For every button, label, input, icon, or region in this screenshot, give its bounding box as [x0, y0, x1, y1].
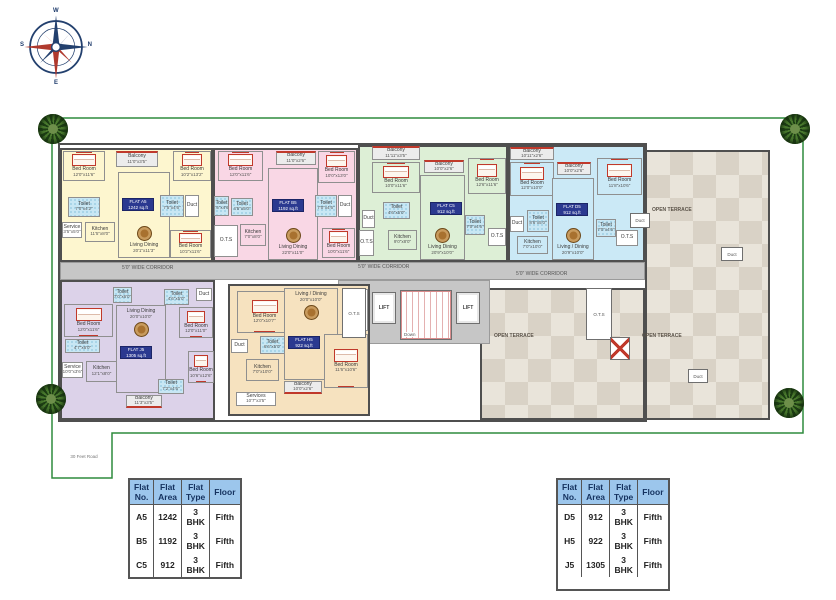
ots-shaft: O.T.S: [616, 230, 638, 246]
duct-label: Duct: [635, 218, 644, 223]
lift: LIFT: [456, 292, 480, 324]
room-dimensions: 3'5"x5'0": [63, 230, 80, 235]
room-dimensions: 4'5"x4'6": [214, 206, 229, 211]
kitchen: Kitchen7'0"x8'0": [240, 224, 266, 246]
bedroom: Bed Room11'6"x10'6": [324, 334, 368, 388]
toilet: Toilet7'2"x4'6": [158, 379, 184, 394]
room-dimensions: 10'0"x3'6": [63, 370, 83, 375]
lift-label: LIFT: [463, 305, 474, 311]
bedroom: Bed Room10'2"x11'6": [170, 230, 211, 258]
room-dimensions: 10'6"x12'6": [190, 374, 212, 379]
bed-icon: [334, 349, 358, 362]
flat-label-c5: FLAT C5912 sq.ft: [430, 202, 462, 215]
table-cell: Fifth: [638, 529, 669, 553]
room-dimensions: 10'7"x3'5": [246, 399, 266, 404]
table-spacer: [557, 577, 669, 590]
room-dimensions: 8'6"x5'0": [529, 221, 546, 226]
duct: Duct: [231, 339, 248, 353]
balcony: Balcony10'11"x2'6": [510, 147, 554, 160]
room-dimensions: 12'0"x10'7": [253, 319, 275, 324]
column-header: Flat No.: [129, 479, 154, 505]
living-dining: Living Dining20'9"x10'0": [420, 175, 465, 260]
ots-shaft: O.T.S: [586, 288, 612, 340]
bed-icon: [383, 166, 409, 178]
room-dimensions: 12'0"x11'6": [78, 328, 100, 333]
flat-info-table: Flat No.Flat AreaFlat TypeFloorD59123 BH…: [556, 478, 670, 591]
column-header: Flat Area: [154, 479, 182, 505]
dining-table-icon: [137, 226, 152, 241]
duct: Duct: [185, 195, 199, 217]
flat-area: 1305 sq.ft: [126, 353, 146, 358]
room-dimensions: 7'0"x8'0": [244, 235, 261, 240]
room-dimensions: 7'0"x4'2": [75, 207, 92, 212]
tree-icon: [38, 114, 68, 144]
ots-shaft-label: O.T.S: [593, 312, 604, 317]
room-dimensions: 20'9"x10'0": [562, 251, 584, 256]
ots-shaft-label: O.T.S: [348, 311, 359, 316]
staircase-label: Down: [403, 332, 417, 337]
table-cell: J5: [557, 553, 582, 577]
table-row: B511923 BHKFifth: [129, 529, 241, 553]
toilet: Toilet7'0"x4'6": [596, 219, 616, 237]
column-header: Flat Type: [182, 479, 210, 505]
bedroom: Bed Room12'6"x11'6": [468, 158, 506, 194]
window-mark-icon: [330, 151, 344, 153]
dining-table-icon: [134, 322, 149, 337]
bed-icon: [76, 308, 102, 321]
table-row: H59223 BHKFifth: [557, 529, 669, 553]
duct: Duct: [510, 216, 524, 232]
room-name: O.T.S: [220, 238, 233, 244]
window-mark-icon: [338, 386, 355, 388]
duct: Duct: [362, 210, 375, 228]
toilet: Toilet7'0"x4'6": [315, 195, 337, 217]
balcony: Balcony10'0"x2'6": [284, 381, 322, 394]
room-name: O.T.S: [621, 235, 634, 241]
ots-shaft: O.T.S: [359, 230, 374, 256]
service-area: Service3'5"x5'0": [62, 222, 82, 238]
bedroom: Bed Room12'0"x11'0": [179, 307, 213, 338]
room-dimensions: 7'5"x4'6": [163, 206, 180, 211]
room-dimensions: 10'0"x11'6": [328, 250, 350, 255]
bed-icon: [252, 300, 278, 313]
bedroom: Bed Room12'0"x11'6": [64, 304, 113, 337]
kitchen: Kitchen7'0"x10'0": [246, 359, 279, 381]
corridor-label: 5'0" WIDE CORRIDOR: [516, 271, 567, 277]
kitchen: Kitchen9'0"x8'0": [388, 230, 417, 250]
table-cell: 3 BHK: [182, 553, 210, 578]
lift-label: LIFT: [379, 305, 390, 311]
toilet: Toilet4'7"x6'0": [65, 339, 100, 353]
window-mark-icon: [190, 336, 203, 338]
bedroom: Bed Room10'0"x13'0": [318, 151, 355, 183]
room-dimensions: 7'0"x4'6": [466, 225, 483, 230]
room-dimensions: 11'0"x2'6": [286, 159, 305, 164]
table-row: D59123 BHKFifth: [557, 505, 669, 530]
room-dimensions: 7'0"x4'6": [597, 228, 614, 233]
column-header: Flat No.: [557, 479, 582, 505]
bed-icon: [72, 154, 95, 165]
flat-area: 1192 sq.ft: [278, 206, 297, 211]
flat-area: 912 sq.ft: [563, 210, 580, 215]
bed-icon: [477, 164, 498, 177]
open-terrace-label: OPEN TERRACE: [642, 333, 682, 339]
room-dimensions: 11'8"x10'6": [609, 184, 631, 189]
table-row: C59123 BHKFifth: [129, 553, 241, 578]
room-dimensions: 4'5"x5'0": [233, 207, 250, 212]
balcony: Balcony11'0"x2'6": [276, 151, 316, 165]
tree-icon: [36, 384, 66, 414]
toilet: Toilet7'0"x4'2": [68, 197, 100, 217]
floor-plan: Bed Room12'0"x11'6"Balcony11'0"x3'5"Bed …: [0, 0, 836, 600]
duct: Duct: [338, 195, 352, 217]
table-cell: Fifth: [210, 529, 241, 553]
toilet: Toilet8'6"x5'0": [527, 210, 549, 232]
table-cell: 912: [154, 553, 182, 578]
dining-table-icon: [435, 228, 450, 243]
room-dimensions: 7'0"x6'0": [114, 295, 131, 300]
table-cell: 3 BHK: [610, 529, 638, 553]
window-mark-icon: [480, 158, 494, 160]
flat-area: 1242 sq.ft: [128, 205, 148, 210]
room-dimensions: 22'0"x11'0": [282, 251, 304, 256]
room-dimensions: 7'0"x10'0": [253, 370, 273, 375]
table-cell: Fifth: [210, 505, 241, 530]
bed-icon: [187, 311, 206, 323]
table-row: J513053 BHKFifth: [557, 553, 669, 577]
bedroom: Bed Room10'0"x11'6": [372, 162, 420, 193]
room-name: O.T.S: [360, 240, 373, 246]
window-mark-icon: [524, 162, 541, 164]
bedroom: Bed Room10'6"x12'6": [188, 351, 214, 383]
fire-shaft-icon: [610, 337, 630, 360]
duct: Duct: [630, 213, 650, 228]
table-cell: Fifth: [638, 553, 669, 577]
toilet: Toilet4'5"x5'0": [231, 198, 253, 216]
window-mark-icon: [183, 230, 199, 232]
kitchen: Kitchen7'0"x10'0": [517, 236, 548, 254]
ots-shaft: O.T.S: [342, 288, 366, 338]
room-dimensions: 4'7"x6'0": [74, 346, 91, 351]
room-dimensions: 10'2"x11'6": [180, 250, 202, 255]
duct: Duct: [196, 288, 212, 301]
floor-plan-canvas: W N E S 30 Feet Road Bed Room12'0"x11'6"…: [0, 0, 836, 600]
balcony: Balcony11'11"x3'5": [372, 146, 420, 160]
bedroom: Bed Room12'0"x11'6": [63, 151, 105, 181]
room-dimensions: 11'5"x8'0": [90, 232, 109, 237]
table-cell: 922: [582, 529, 610, 553]
window-mark-icon: [79, 335, 98, 337]
flat-label-d5: FLAT D5912 sq.ft: [556, 203, 588, 216]
room-dimensions: 12'0"x11'6": [230, 173, 252, 178]
column-header: Flat Type: [610, 479, 638, 505]
room-dimensions: 11'11"x3'5": [385, 154, 407, 159]
room-dimensions: 10'2"x13'2": [181, 173, 203, 178]
living-dining: Living / Dining20'9"x10'0": [552, 178, 594, 260]
tree-icon: [780, 114, 810, 144]
window-mark-icon: [185, 151, 199, 153]
open-terrace-label: OPEN TERRACE: [494, 333, 534, 339]
table-cell: 1192: [154, 529, 182, 553]
bedroom: Bed Room10'2"x13'2": [173, 151, 211, 181]
room-dimensions: 7'2"x4'6": [162, 387, 179, 392]
ots-shaft: O.T.S: [488, 228, 506, 246]
table-cell: 1242: [154, 505, 182, 530]
column-header: Floor: [638, 479, 669, 505]
bedroom: Bed Room11'8"x10'6": [597, 158, 642, 195]
table-cell: 3 BHK: [182, 529, 210, 553]
toilet: Toilet7'5"x4'6": [160, 195, 184, 217]
bedroom: Bed Room12'0"x10'0": [510, 162, 554, 196]
room-name: Duct: [363, 216, 373, 222]
column-header: Floor: [210, 479, 241, 505]
room-dimensions: 10'0"x2'6": [434, 167, 454, 172]
room-dimensions: 11'3"x3'5": [134, 401, 153, 406]
kitchen: Kitchen11'5"x8'0": [85, 222, 115, 242]
room-name: Duct: [199, 292, 209, 298]
bed-icon: [194, 355, 208, 367]
room-dimensions: 6'6"x5'0": [264, 345, 281, 350]
balcony: Balcony11'3"x3'5": [126, 395, 162, 408]
room-dimensions: 10'0"x11'6": [385, 184, 407, 189]
table-cell: 3 BHK: [610, 553, 638, 577]
toilet: Toilet4'5"x4'6": [214, 196, 229, 216]
open-terrace-label: OPEN TERRACE: [652, 207, 692, 213]
table-cell: Fifth: [210, 553, 241, 578]
table-row: A512423 BHKFifth: [129, 505, 241, 530]
toilet: Toilet4'6"x5'0": [164, 289, 189, 305]
flat-label-b5: FLAT B51192 sq.ft: [272, 199, 304, 212]
dining-table-icon: [286, 228, 301, 243]
table-cell: 1305: [582, 553, 610, 577]
toilet: Toilet7'0"x6'0": [113, 287, 132, 303]
flat-area: 922 sq.ft: [295, 343, 312, 348]
room-name: Duct: [512, 221, 522, 227]
corridor-label: 5'0" WIDE CORRIDOR: [358, 264, 409, 270]
table-cell: D5: [557, 505, 582, 530]
room-dimensions: 20'1"x11'3": [133, 249, 155, 254]
room-name: Duct: [187, 203, 197, 209]
table-cell: Fifth: [638, 505, 669, 530]
room-dimensions: 10'0"x2'6": [564, 169, 584, 174]
flat-label-j5: FLAT J51305 sq.ft: [120, 346, 152, 359]
room-dimensions: 12'1"x8'0": [92, 372, 112, 377]
room-name: Duct: [340, 203, 350, 209]
flat-label-h5: FLAT H5922 sq.ft: [288, 336, 320, 349]
room-dimensions: 12'0"x10'0": [521, 186, 543, 191]
room-dimensions: 20'0"x10'0": [130, 315, 152, 320]
bed-icon: [607, 164, 632, 177]
bed-icon: [228, 154, 253, 165]
table-cell: C5: [129, 553, 154, 578]
room-dimensions: 12'6"x11'6": [476, 183, 498, 188]
toilet: Toilet7'0"x4'6": [465, 215, 485, 235]
room-dimensions: 11'0"x3'5": [127, 160, 146, 165]
room-dimensions: 20'9"x10'0": [431, 251, 453, 256]
duct: Duct: [688, 369, 708, 383]
bedroom: Bed Room12'0"x11'6": [218, 151, 263, 181]
staircase: Down: [400, 290, 452, 340]
room-dimensions: 4'6"x5'0": [168, 297, 185, 302]
room-dimensions: 10'0"x13'0": [325, 174, 347, 179]
window-mark-icon: [611, 158, 628, 160]
room-name: Duct: [234, 343, 244, 349]
balcony: Balcony11'0"x3'5": [116, 151, 158, 167]
table-cell: 3 BHK: [610, 505, 638, 530]
flat-info-table: Flat No.Flat AreaFlat TypeFloorA512423 B…: [128, 478, 242, 579]
service-area: Services10'7"x3'5": [236, 392, 276, 406]
room-dimensions: 12'0"x11'6": [73, 173, 95, 178]
bed-icon: [329, 231, 347, 242]
kitchen: Kitchen12'1"x8'0": [86, 361, 117, 382]
toilet: Toilet4'6"x5'0": [383, 202, 410, 219]
room-dimensions: 10'0"x2'6": [293, 387, 313, 392]
bedroom: Bed Room10'0"x11'6": [322, 228, 355, 258]
dining-table-icon: [566, 228, 581, 243]
duct-label: Duct: [727, 252, 736, 257]
bed-icon: [179, 233, 202, 244]
toilet: Toilet6'6"x5'0": [260, 336, 285, 354]
corridor-label: 5'0" WIDE CORRIDOR: [122, 265, 173, 271]
living-dining: Living Dining22'0"x11'0": [268, 168, 318, 260]
room-dimensions: 12'0"x11'0": [185, 329, 207, 334]
window-mark-icon: [76, 151, 92, 153]
table-cell: H5: [557, 529, 582, 553]
service-area: Service10'0"x3'6": [62, 362, 83, 378]
balcony: Balcony10'0"x2'6": [424, 160, 464, 173]
duct: Duct: [721, 247, 743, 261]
window-mark-icon: [196, 381, 206, 383]
window-mark-icon: [254, 331, 275, 333]
room-dimensions: 7'0"x4'6": [317, 206, 334, 211]
window-mark-icon: [232, 151, 249, 153]
room-name: O.T.S: [491, 234, 504, 240]
balcony: Balcony10'0"x2'6": [557, 162, 591, 175]
ots-shaft: O.T.S: [214, 225, 238, 257]
duct-label: Duct: [693, 374, 702, 379]
window-mark-icon: [332, 228, 344, 230]
flat-label-a5: FLAT A51242 sq.ft: [122, 198, 154, 211]
tree-icon: [774, 388, 804, 418]
room-dimensions: 20'0"x10'0": [300, 298, 322, 303]
lift: LIFT: [372, 292, 396, 324]
table-cell: A5: [129, 505, 154, 530]
room-dimensions: 4'6"x5'0": [388, 211, 405, 216]
table-cell: 3 BHK: [182, 505, 210, 530]
flat-area: 912 sq.ft: [437, 209, 454, 214]
bed-icon: [326, 155, 346, 167]
room-dimensions: 7'0"x10'0": [523, 245, 543, 250]
table-cell: B5: [129, 529, 154, 553]
room-dimensions: 11'6"x10'6": [335, 368, 357, 373]
dining-table-icon: [304, 305, 319, 320]
bed-icon: [520, 167, 544, 180]
room-dimensions: 10'11"x2'6": [521, 154, 543, 159]
table-cell: 912: [582, 505, 610, 530]
bed-icon: [182, 154, 203, 165]
window-mark-icon: [387, 162, 405, 164]
column-header: Flat Area: [582, 479, 610, 505]
room-dimensions: 9'0"x8'0": [394, 240, 411, 245]
